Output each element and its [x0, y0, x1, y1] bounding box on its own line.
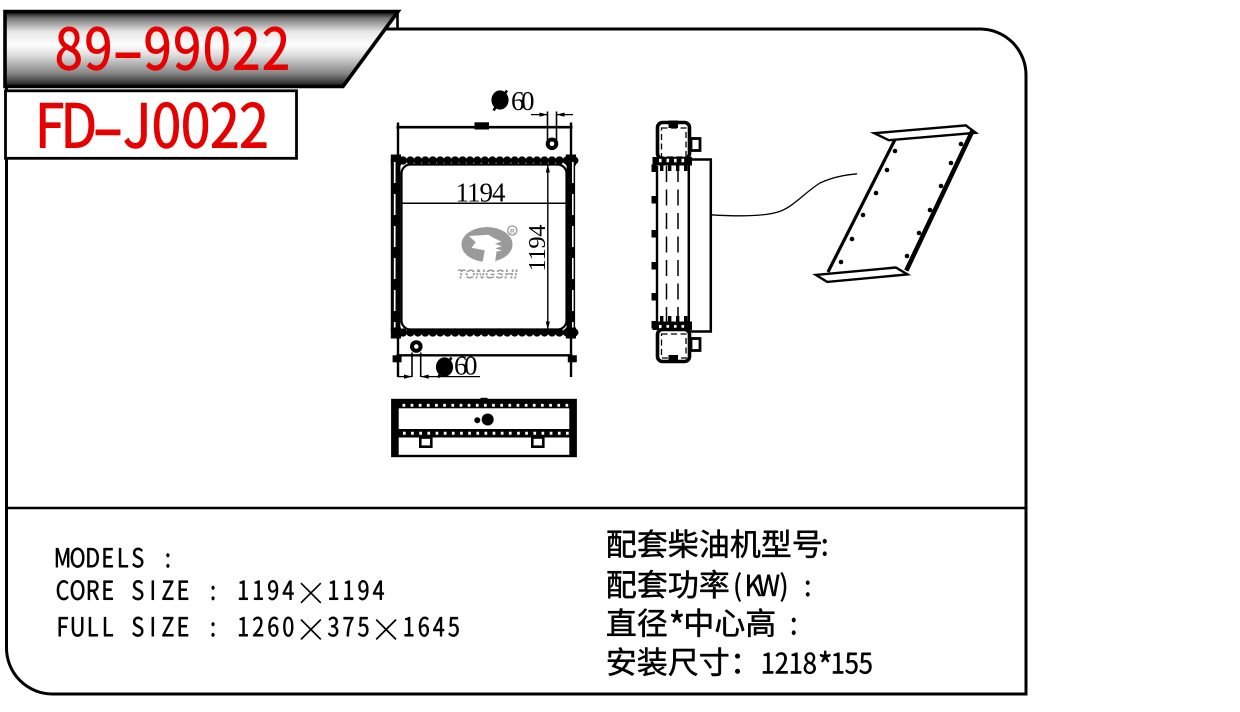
svg-text:TONGSHI: TONGSHI	[457, 267, 518, 282]
svg-text:1194: 1194	[524, 225, 551, 272]
svg-text:R: R	[510, 228, 515, 235]
svg-text:60: 60	[511, 86, 535, 116]
svg-text:60: 60	[454, 351, 478, 381]
svg-text:1194: 1194	[456, 177, 507, 207]
